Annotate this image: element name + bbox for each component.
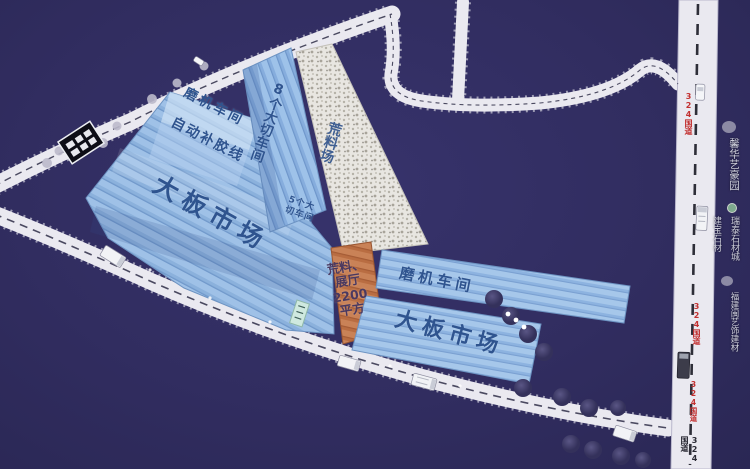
highway-label-324-lower: 324国道 bbox=[688, 380, 699, 422]
road-spur bbox=[458, 2, 463, 100]
highway-label-324-mid: 324国道 bbox=[691, 302, 702, 345]
tree bbox=[535, 343, 553, 361]
highway-label-324-bottom: 324国道 bbox=[679, 436, 699, 469]
car bbox=[695, 84, 705, 100]
centerline-north bbox=[390, 14, 678, 105]
bush bbox=[173, 79, 182, 88]
site-map: 磨机车间 自动补胶线 大板市场 8个大切车间 5个大 切车间 荒料场 荒料、 展… bbox=[0, 0, 750, 469]
road-north bbox=[390, 14, 678, 105]
label-raw-block-hall: 荒料、 展厅 2200 平方 bbox=[323, 257, 375, 321]
company-logo-icon bbox=[728, 204, 737, 213]
sign-right-top: 馨华艺豪园 bbox=[727, 138, 742, 191]
tree bbox=[514, 379, 532, 397]
tree bbox=[485, 290, 503, 308]
tree bbox=[553, 388, 571, 406]
car bbox=[193, 56, 204, 66]
bush bbox=[42, 158, 52, 168]
raw-block-yard bbox=[296, 44, 428, 254]
tree bbox=[580, 399, 598, 417]
tree bbox=[612, 447, 630, 465]
landmark-blob bbox=[721, 276, 733, 286]
tree bbox=[562, 435, 580, 453]
tree bbox=[519, 325, 537, 343]
sign-right-c: 福建闽艺饰建材 bbox=[728, 292, 740, 352]
truck bbox=[677, 352, 690, 378]
sign-right-a: 建宝石材 bbox=[710, 216, 723, 252]
tree bbox=[584, 441, 602, 459]
tree bbox=[502, 307, 520, 325]
tree bbox=[610, 400, 626, 416]
road-north-edge bbox=[390, 14, 678, 105]
tree bbox=[635, 452, 651, 468]
sign-right-b: 瑞泰石材城 bbox=[728, 216, 741, 261]
truck bbox=[696, 206, 708, 231]
landmark-blob bbox=[722, 121, 736, 133]
map-canvas bbox=[0, 0, 750, 469]
highway-label-324-top: 324国道 bbox=[683, 92, 694, 135]
bush bbox=[147, 94, 157, 104]
buildings bbox=[86, 44, 630, 384]
bush bbox=[113, 122, 122, 131]
